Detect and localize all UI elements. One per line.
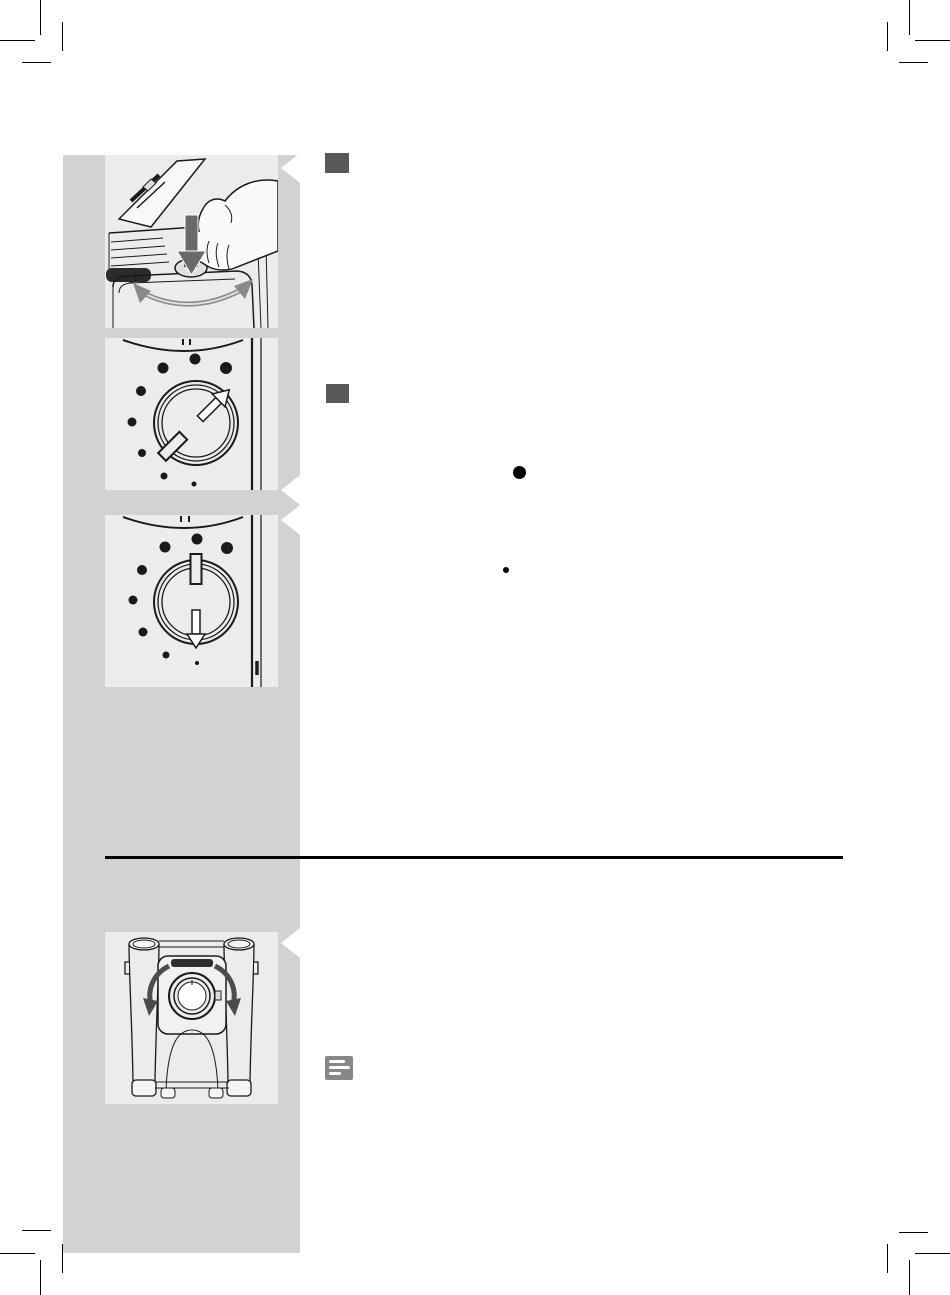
right-tube bbox=[224, 938, 258, 1096]
crop-mark bbox=[899, 62, 928, 63]
list-bullet-small bbox=[503, 567, 509, 573]
note-icon-line bbox=[329, 1060, 345, 1063]
manual-page bbox=[0, 0, 950, 1295]
section-divider bbox=[105, 856, 843, 859]
crop-mark bbox=[0, 40, 35, 41]
crop-mark bbox=[887, 1244, 888, 1273]
crop-mark bbox=[915, 40, 950, 41]
step-marker-2 bbox=[326, 384, 349, 403]
step-marker-1 bbox=[325, 153, 349, 173]
grinder-press-illustration bbox=[105, 155, 278, 328]
spout-illustration bbox=[105, 932, 278, 1104]
callout-notch-icon bbox=[281, 505, 300, 535]
crop-mark bbox=[40, 1260, 41, 1295]
dial-lever bbox=[158, 432, 187, 461]
center-body bbox=[155, 941, 229, 1098]
grind-dial-turned-figure bbox=[105, 338, 278, 490]
crop-mark bbox=[40, 0, 41, 35]
rotate-arrows-icon bbox=[133, 279, 253, 304]
callout-notch-icon bbox=[281, 928, 300, 958]
crop-mark bbox=[915, 1253, 950, 1254]
dispensing-spout-rotate-figure bbox=[105, 932, 278, 1104]
grind-dial-down-figure bbox=[105, 515, 278, 687]
callout-notch-icon bbox=[281, 475, 300, 505]
crop-mark bbox=[899, 1232, 928, 1233]
machine-edge-lines bbox=[252, 338, 261, 490]
grind-dial-illustration bbox=[105, 338, 278, 490]
grind-setting-dots bbox=[129, 534, 234, 666]
dial-lever bbox=[191, 554, 202, 584]
note-icon-line bbox=[329, 1072, 341, 1075]
grinder-adjustment-press-figure bbox=[105, 155, 278, 328]
list-bullet-large bbox=[513, 466, 526, 479]
crop-mark bbox=[62, 22, 63, 51]
grind-setting-dots bbox=[128, 354, 233, 487]
dial-down-arrow-icon bbox=[187, 610, 205, 648]
note-icon bbox=[325, 1056, 353, 1080]
crop-mark bbox=[22, 1230, 51, 1231]
crop-mark bbox=[887, 22, 888, 51]
crop-mark bbox=[22, 62, 51, 63]
machine-edge-lines bbox=[252, 515, 261, 687]
machine-top-outline bbox=[123, 339, 243, 351]
grind-dial-down-illustration bbox=[105, 515, 278, 687]
left-tube bbox=[125, 938, 159, 1096]
machine-top-outline bbox=[123, 516, 243, 528]
crop-mark bbox=[909, 1260, 910, 1295]
crop-mark bbox=[909, 0, 910, 35]
note-icon-line bbox=[329, 1066, 350, 1069]
callout-notch-icon bbox=[281, 153, 300, 183]
crop-mark bbox=[0, 1253, 35, 1254]
